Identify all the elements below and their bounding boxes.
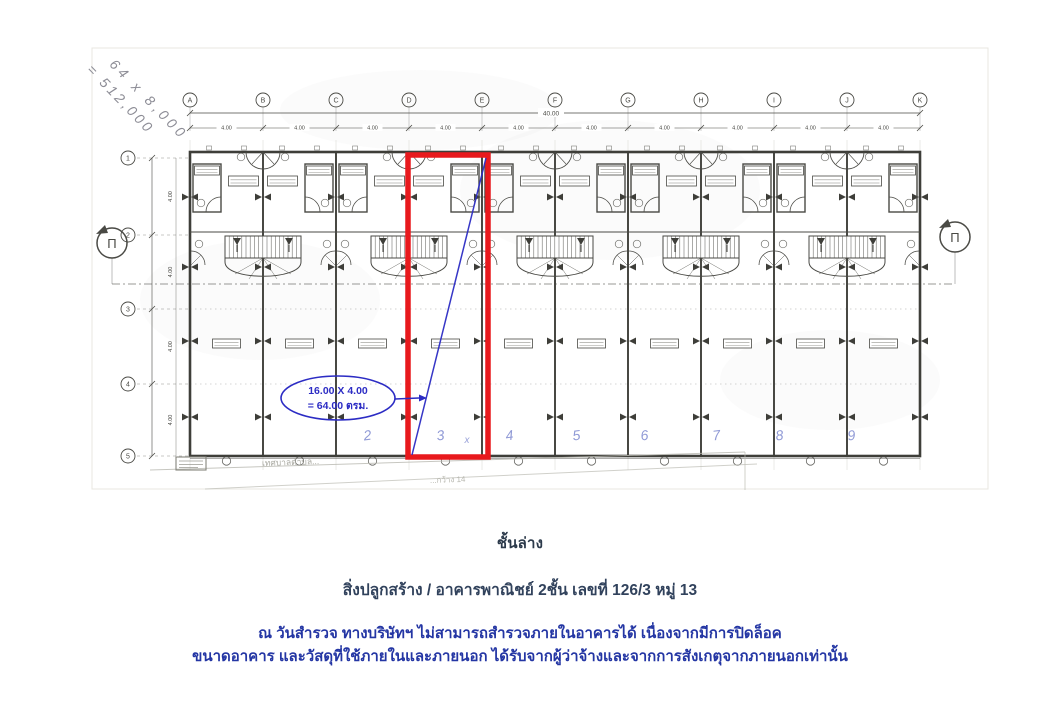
- area-annotation: 16.00 X 4.00= 64.00 ตรม.: [281, 376, 427, 420]
- grid-row-number: 3: [126, 307, 130, 314]
- depth-dimension: 4.00: [168, 267, 174, 278]
- handwritten-unit-number: 4: [505, 427, 515, 444]
- depth-dimension: 4.00: [168, 415, 174, 426]
- room-label-box: [229, 176, 259, 186]
- handwritten-unit-number: 2: [362, 427, 373, 444]
- overall-dimension: 40.00: [543, 111, 560, 118]
- grid-column-letter: F: [553, 98, 557, 105]
- room-label-box: [852, 176, 882, 186]
- room-label-box: [779, 166, 804, 175]
- unit-bottom-tag: [368, 457, 376, 465]
- room-label-box: [633, 166, 658, 175]
- tag-circle: [237, 153, 245, 161]
- bay-dimension: 4.00: [513, 126, 524, 132]
- unit-bottom-tag: [514, 457, 522, 465]
- grid-row-number: 4: [126, 382, 130, 389]
- grid-column-letter: G: [625, 98, 630, 105]
- room-label-box: [414, 176, 444, 186]
- bay-dimension: 4.00: [732, 126, 743, 132]
- grid-column-letter: E: [480, 98, 485, 105]
- tag-circle: [195, 240, 203, 248]
- bay-dimension: 4.00: [586, 126, 597, 132]
- tag-circle: [321, 199, 329, 207]
- bay-dimension: 4.00: [221, 126, 232, 132]
- tag-circle: [759, 199, 767, 207]
- room-label-box: [213, 339, 241, 348]
- bay-dimension: 4.00: [659, 126, 670, 132]
- room-label-box: [341, 166, 366, 175]
- tag-circle: [341, 240, 349, 248]
- unit-bottom-tag: [879, 457, 887, 465]
- tag-circle: [343, 199, 351, 207]
- handwritten-unit-number: 6: [640, 427, 650, 444]
- tag-circle: [907, 240, 915, 248]
- room-label-box: [724, 339, 752, 348]
- floor-plan-drawing: ABCDEFGHIJK40.004.004.004.004.004.004.00…: [0, 0, 1040, 505]
- grid-row-number: 1: [126, 156, 130, 163]
- depth-dimension: 4.00: [168, 191, 174, 202]
- faint-road-text: ...กว้าง 14: [430, 475, 466, 485]
- tag-circle: [383, 153, 391, 161]
- tag-circle: [281, 153, 289, 161]
- room-label-box: [745, 166, 770, 175]
- survey-note-line1: ณ วันสำรวจ ทางบริษัทฯ ไม่สามารถสำรวจภายใ…: [0, 622, 1040, 645]
- room-label-box: [307, 166, 332, 175]
- room-label-box: [797, 339, 825, 348]
- room-label-box: [286, 339, 314, 348]
- unit-bottom-tag: [733, 457, 741, 465]
- handwritten-unit-number: 7: [712, 426, 723, 443]
- tag-circle: [761, 240, 769, 248]
- room-label-box: [521, 176, 551, 186]
- bay-dimension: 4.00: [440, 126, 451, 132]
- grid-column-letter: D: [406, 98, 411, 105]
- survey-note: ณ วันสำรวจ ทางบริษัทฯ ไม่สามารถสำรวจภายใ…: [0, 622, 1040, 668]
- depth-dimension: 4.00: [168, 341, 174, 352]
- handwritten-price-note: 64 x 8,000= 512,000: [84, 47, 191, 156]
- room-label-box: [432, 339, 460, 348]
- grid-column-letter: K: [918, 98, 923, 105]
- grid-column-letter: B: [261, 98, 266, 105]
- unit-bottom-tag: [806, 457, 814, 465]
- bay-dimension: 4.00: [294, 126, 305, 132]
- room-label-box: [578, 339, 606, 348]
- section-marker-label: Π: [107, 236, 116, 251]
- room-label-box: [268, 176, 298, 186]
- grid-column-letter: J: [845, 98, 849, 105]
- tag-circle: [821, 153, 829, 161]
- room-label-box: [651, 339, 679, 348]
- unit-bottom-tag: [222, 457, 230, 465]
- room-label-box: [706, 176, 736, 186]
- bay-dimension: 4.00: [367, 126, 378, 132]
- grid-column-letter: C: [333, 98, 338, 105]
- tag-circle: [323, 240, 331, 248]
- handwritten-unit-number: 9: [847, 427, 857, 444]
- faint-municipality-text: เทศบาลตำบล...: [262, 456, 320, 468]
- tag-circle: [781, 199, 789, 207]
- grid-row-number: 5: [126, 454, 130, 461]
- tag-circle: [905, 199, 913, 207]
- bay-dimension: 4.00: [805, 126, 816, 132]
- unit-bottom-tag: [660, 457, 668, 465]
- floor-label: ชั้นล่าง: [0, 531, 1040, 555]
- room-label-box: [891, 166, 916, 175]
- grid-column-letter: A: [188, 98, 193, 105]
- grid-column-letter: I: [773, 98, 775, 105]
- handwritten-x-mark: x: [464, 435, 471, 446]
- annotation-dimensions: 16.00 X 4.00: [308, 385, 368, 397]
- scanned-survey-page: ABCDEFGHIJK40.004.004.004.004.004.004.00…: [0, 0, 1040, 720]
- room-label-box: [359, 339, 387, 348]
- survey-note-line2: ขนาดอาคาร และวัสดุที่ใช้ภายในและภายนอก ไ…: [0, 645, 1040, 668]
- section-marker: Π: [939, 219, 970, 284]
- section-marker-label: Π: [950, 230, 959, 245]
- room-label-box: [667, 176, 697, 186]
- bay-dimension: 4.00: [878, 126, 889, 132]
- annotation-area: = 64.00 ตรม.: [308, 400, 369, 412]
- grid-column-letter: H: [698, 98, 703, 105]
- handwritten-unit-numbers: 23456789x: [362, 426, 857, 446]
- room-label-box: [599, 166, 624, 175]
- room-label-box: [505, 339, 533, 348]
- annotation-diagonal-line: [412, 158, 486, 455]
- room-label-box: [813, 176, 843, 186]
- building-description: สิ่งปลูกสร้าง / อาคารพาณิชย์ 2ชั้น เลขที…: [0, 577, 1040, 602]
- room-label-box: [560, 176, 590, 186]
- tag-circle: [779, 240, 787, 248]
- tag-circle: [197, 199, 205, 207]
- handwritten-unit-number: 3: [436, 427, 446, 444]
- room-label-box: [453, 166, 478, 175]
- handwritten-unit-number: 8: [775, 427, 785, 444]
- room-label-box: [375, 176, 405, 186]
- handwritten-unit-number: 5: [572, 427, 582, 444]
- room-label-box: [870, 339, 898, 348]
- section-marker: Π: [96, 225, 127, 284]
- tag-circle: [865, 153, 873, 161]
- floor-plan-figure: ABCDEFGHIJK40.004.004.004.004.004.004.00…: [0, 0, 1040, 505]
- room-label-box: [195, 166, 220, 175]
- tag-circle: [469, 240, 477, 248]
- unit-bottom-tag: [587, 457, 595, 465]
